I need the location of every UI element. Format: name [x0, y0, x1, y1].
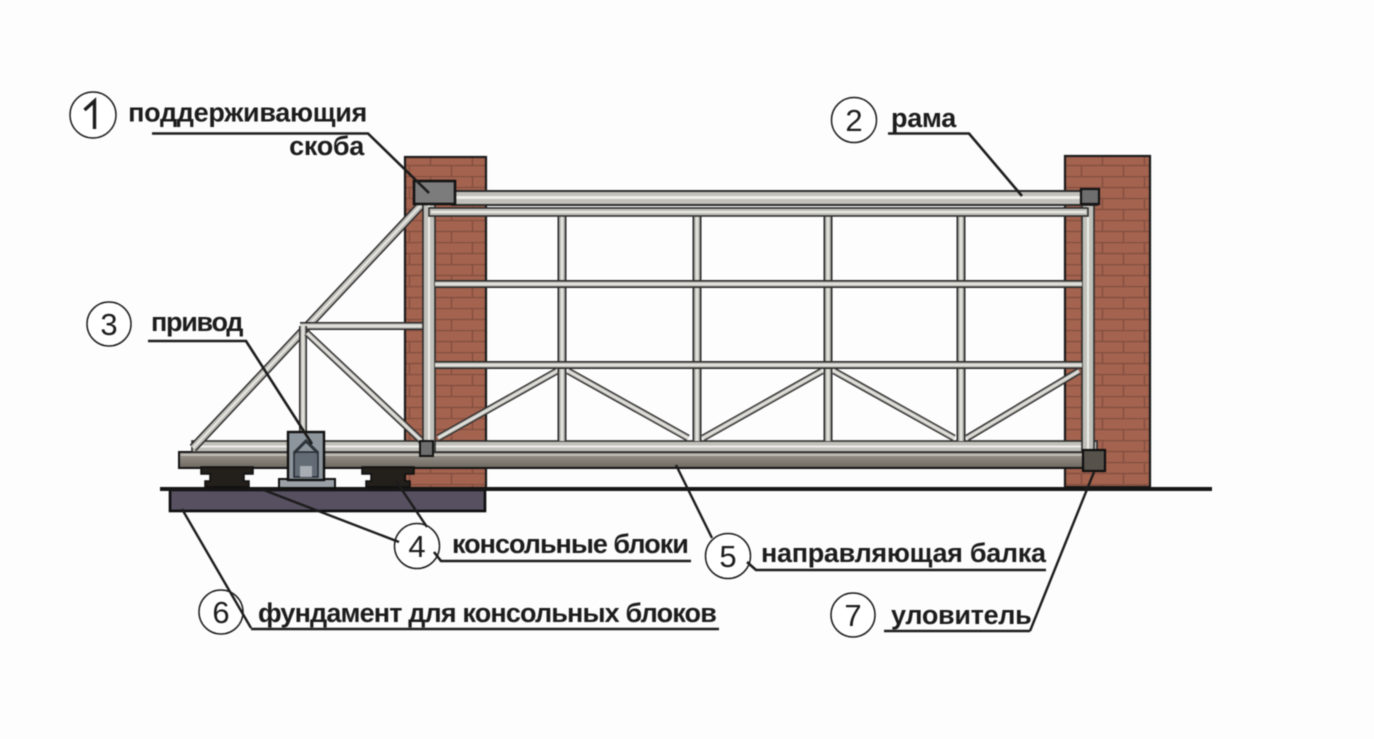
svg-text:6: 6 [212, 595, 229, 630]
svg-text:направляющая балка: направляющая балка [761, 538, 1047, 568]
svg-text:консольные блоки: консольные блоки [452, 529, 688, 559]
svg-text:поддерживающия: поддерживающия [128, 98, 367, 128]
svg-text:3: 3 [100, 307, 117, 342]
svg-text:уловитель: уловитель [891, 600, 1031, 630]
svg-text:4: 4 [408, 529, 425, 564]
svg-text:скоба: скоба [289, 131, 365, 161]
svg-text:рама: рама [891, 103, 957, 133]
svg-text:фундамент для консольных блоко: фундамент для консольных блоков [258, 598, 716, 628]
svg-text:7: 7 [844, 598, 861, 633]
svg-text:2: 2 [845, 103, 862, 138]
svg-text:5: 5 [719, 539, 736, 574]
svg-text:привод: привод [151, 307, 243, 337]
